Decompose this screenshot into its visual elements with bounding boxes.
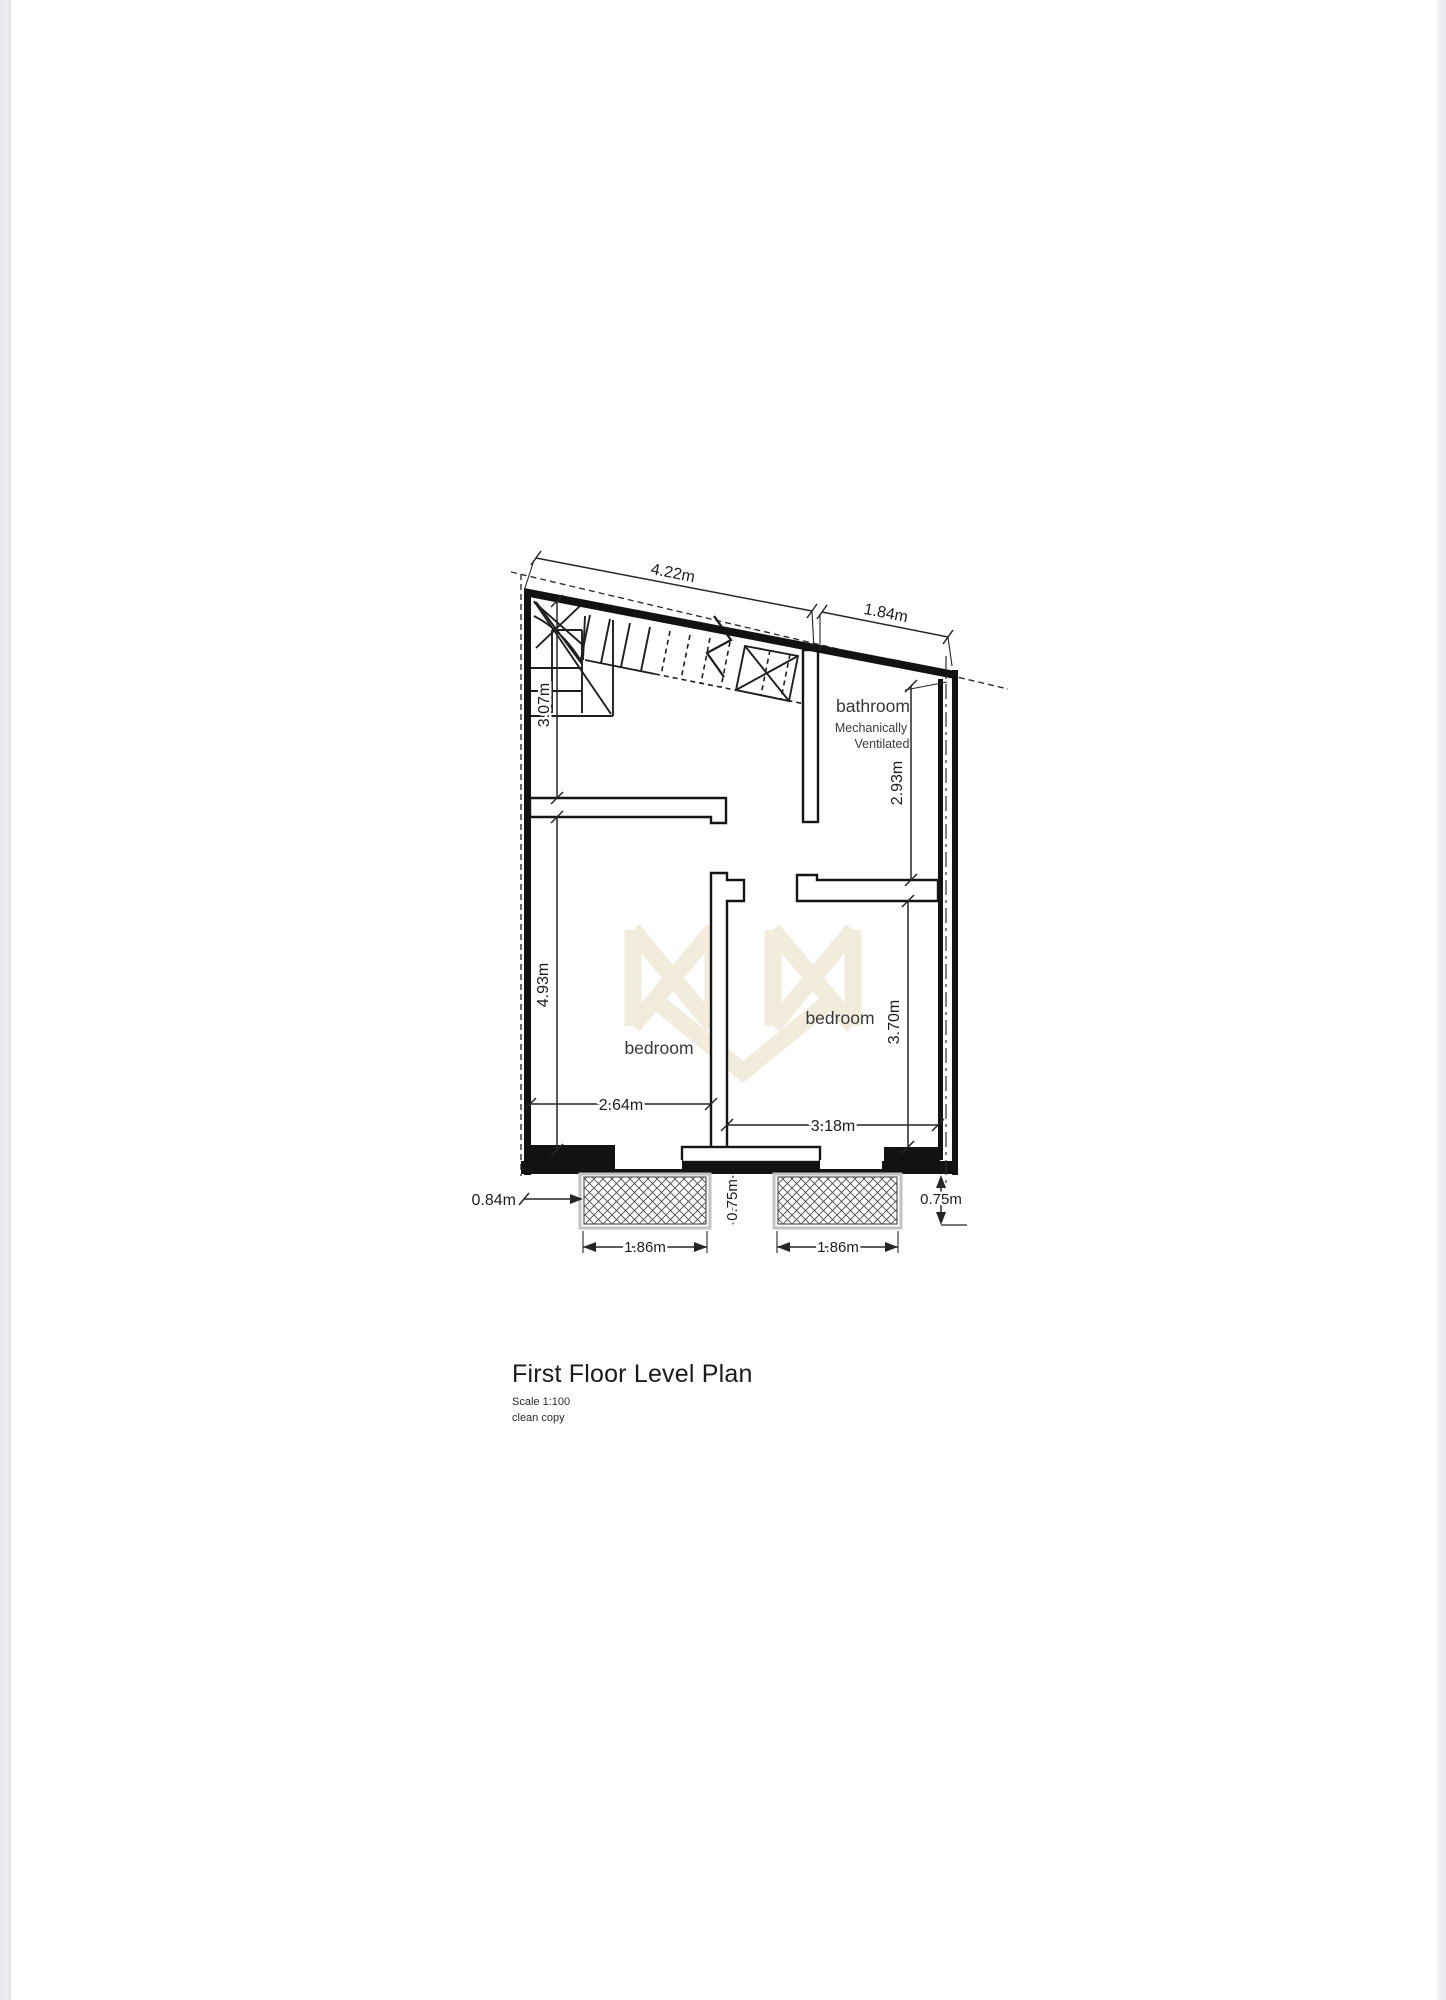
title-block: First Floor Level Plan Scale 1:100 clean… [512, 1360, 753, 1424]
balcony-right [774, 1174, 901, 1228]
plan-title: First Floor Level Plan [512, 1360, 753, 1389]
bathroom-bottom-wall [797, 875, 938, 901]
dim-bedroom-left-depth-label: 4.93m [535, 963, 552, 1007]
bottom-pier-right [884, 1147, 940, 1163]
site-boundary [511, 572, 1008, 1176]
viewer-left-edge [0, 0, 11, 2000]
bedroom-right-label: bedroom [805, 1008, 874, 1028]
viewer-right-edge [1436, 0, 1446, 2000]
dim-bedroom-right-depth: 3.70m [886, 895, 914, 1153]
landing-wall [530, 798, 726, 823]
dim-bathroom-depth-label: 2.93m [889, 761, 906, 805]
dim-balcony-right-width-label: 1.86m [817, 1239, 859, 1256]
plan-scale-note: Scale 1:100 [512, 1396, 753, 1408]
bedroom-divider-wall [711, 873, 744, 1150]
dim-stair-depth-label: 3.07m [536, 683, 553, 727]
dim-balcony-depth-right: 0.75m [920, 1175, 967, 1225]
bedroom-left-label: bedroom [624, 1038, 693, 1058]
bathroom-label: bathroom [836, 696, 910, 716]
bottom-pier-middle [682, 1147, 820, 1162]
dim-balcony-right-width: 1.86m [777, 1231, 898, 1256]
dim-bedroom-right-width: 3.18m [721, 1118, 944, 1135]
balcony-left [580, 1174, 710, 1228]
bottom-pier-left [527, 1145, 615, 1163]
left-wall [524, 590, 531, 1175]
dim-balcony-left-width: 1.86m [583, 1231, 707, 1256]
dim-bedroom-left-width: 2.64m [524, 1097, 717, 1114]
bathroom-note-line2: Ventilated [855, 737, 910, 751]
dim-balcony-depth-mid: 0.75m [724, 1175, 741, 1225]
party-wall [938, 656, 958, 1188]
floor-plan-drawing: 4.22m 1.84m 3.07m 4.93m [0, 0, 1446, 2000]
bathroom-note-line1: Mechanically [835, 721, 908, 735]
dim-balcony-left-width-label: 1.86m [624, 1239, 666, 1256]
floor-plan-sheet: 4.22m 1.84m 3.07m 4.93m [0, 0, 1446, 2000]
dim-top-width-label: 4.22m [649, 561, 696, 586]
dim-bedroom-right-depth-label: 3.70m [886, 1000, 903, 1044]
dim-bedroom-left-width-label: 2.64m [599, 1097, 643, 1114]
dim-bedroom-right-width-label: 3.18m [811, 1118, 855, 1135]
plan-revision-note: clean copy [512, 1412, 753, 1424]
dim-top-right-width-label: 1.84m [862, 601, 909, 626]
bathroom-left-wall [803, 650, 818, 822]
stair-cross-box [736, 646, 798, 701]
dim-balcony-depth-mid-label: 0.75m [724, 1179, 741, 1221]
dim-side-offset-label: 0.84m [472, 1192, 516, 1209]
dim-side-offset: 0.84m [472, 1192, 583, 1209]
top-wall [524, 588, 955, 679]
dim-balcony-depth-right-label: 0.75m [920, 1191, 962, 1208]
